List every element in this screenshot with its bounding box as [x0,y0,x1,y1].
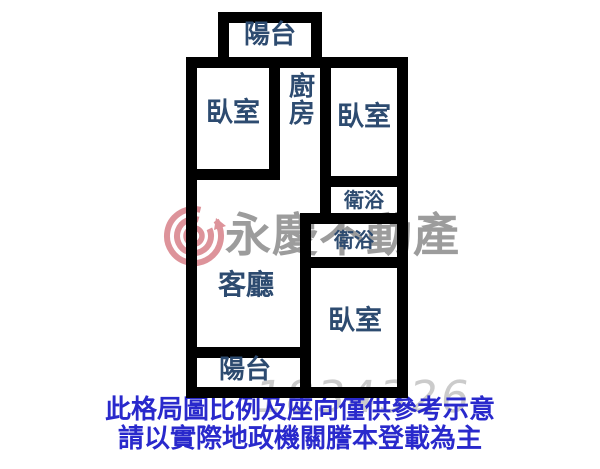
wall-bedroom-left-bottom [186,169,280,180]
disclaimer-text: 此格局圖比例及座向僅供參考示意 請以實際地政機關謄本登載為主 [0,396,600,454]
wall-bathroom-lower-bottom [300,257,408,268]
disclaimer-line-2: 請以實際地政機關謄本登載為主 [0,425,600,454]
room-label-bedroom-bottom: 臥室 [328,308,382,335]
wall-bathroom-lower-left [300,213,311,398]
room-label-bath-lower: 衛浴 [334,230,374,250]
room-label-bedroom-left: 臥室 [206,100,260,127]
room-label-balcony-bottom: 陽台 [219,357,271,383]
room-label-bath-upper: 衛浴 [344,190,384,210]
room-label-balcony-top: 陽台 [244,22,296,48]
floorplan-canvas: 永慶不動產 1834326 陽台 臥室 廚房 臥室 衛浴 衛浴 客廳 臥室 陽台… [0,0,600,469]
wall-kitchen-right [320,57,331,224]
room-label-bedroom-right: 臥室 [337,104,391,131]
wall-kitchen-left [269,57,280,180]
disclaimer-line-1: 此格局圖比例及座向僅供參考示意 [0,396,600,425]
wall-bathroom-divider [300,213,408,224]
room-label-kitchen: 廚房 [288,74,316,128]
room-label-living-room: 客廳 [218,271,274,299]
wall-bedroom-right-bottom [320,176,408,187]
